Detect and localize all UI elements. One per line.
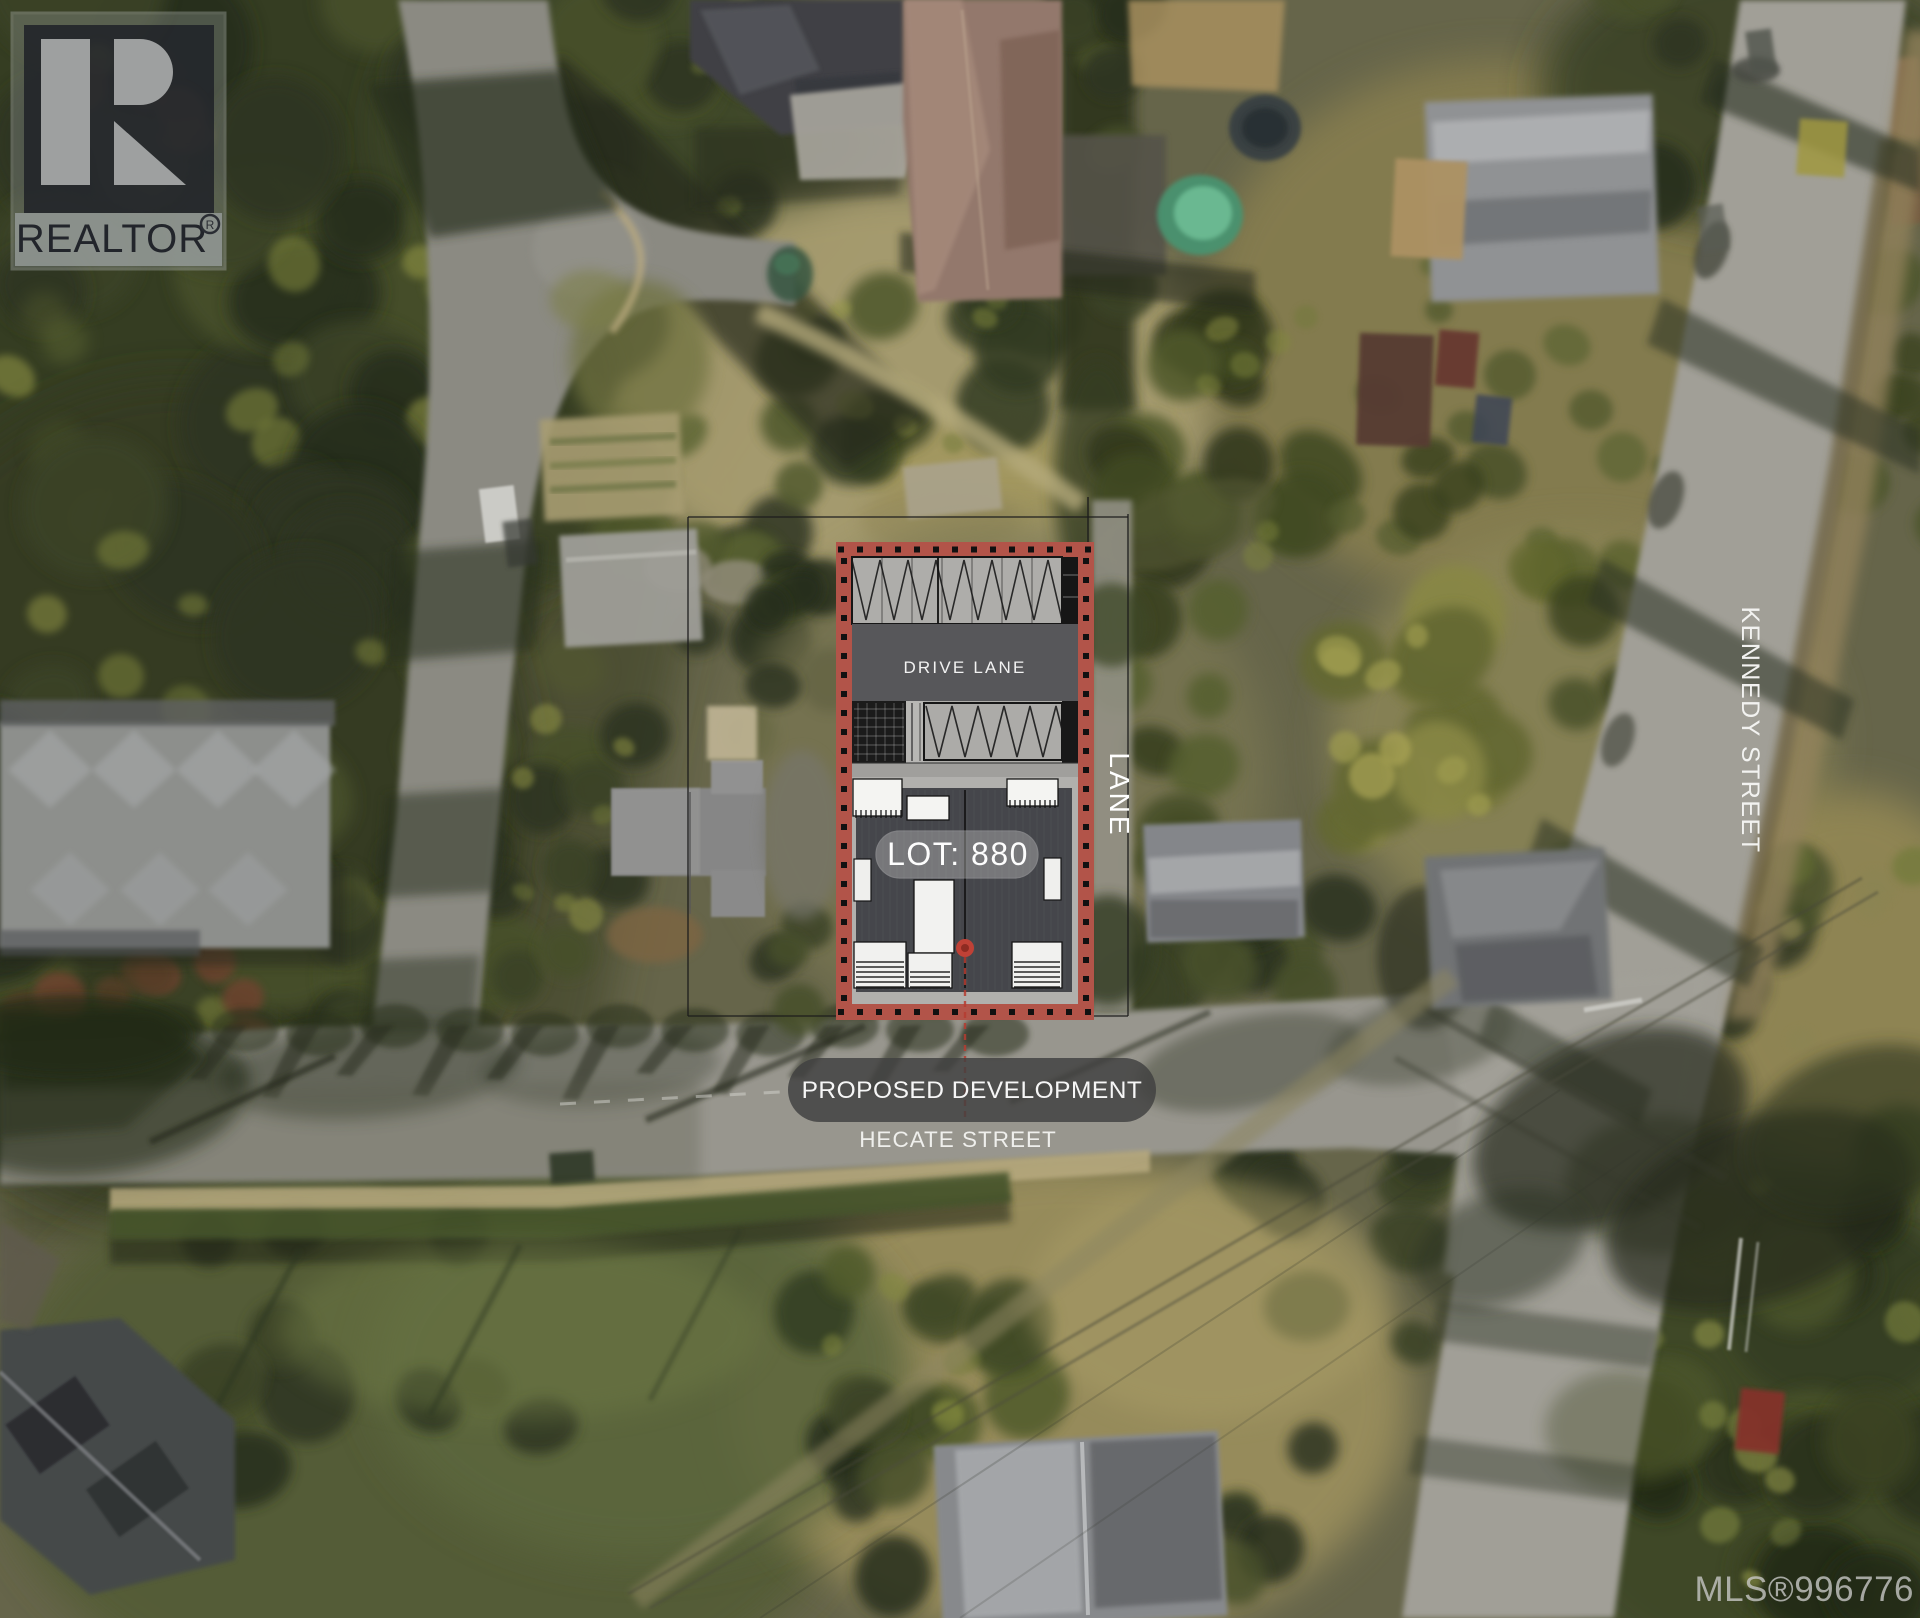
svg-text:HECATE STREET: HECATE STREET	[859, 1127, 1057, 1152]
svg-text:LOT: 880: LOT: 880	[887, 836, 1029, 872]
svg-text:MLS®996776: MLS®996776	[1694, 1570, 1914, 1609]
svg-text:KENNEDY STREET: KENNEDY STREET	[1736, 607, 1764, 854]
svg-text:DRIVE LANE: DRIVE LANE	[903, 658, 1026, 677]
svg-text:PROPOSED DEVELOPMENT: PROPOSED DEVELOPMENT	[802, 1077, 1143, 1104]
svg-text:LANE: LANE	[1104, 752, 1135, 837]
svg-text:REALTOR: REALTOR	[16, 217, 208, 261]
svg-text:R: R	[206, 218, 215, 232]
